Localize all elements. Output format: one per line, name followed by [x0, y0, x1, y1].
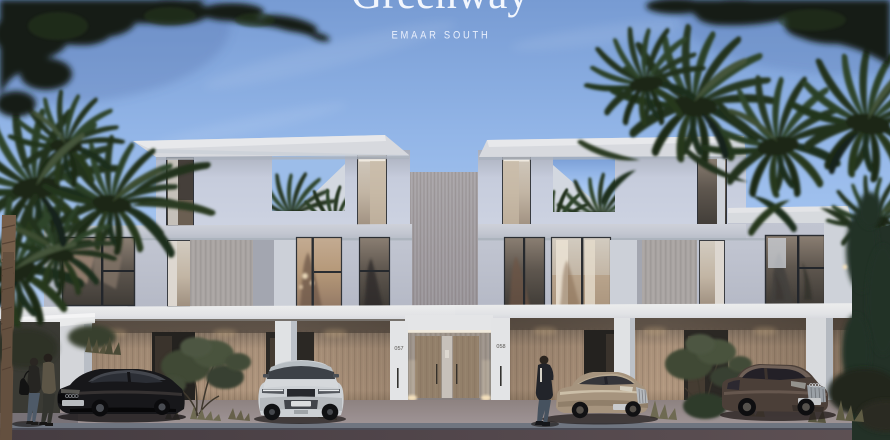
- svg-text:Greenway: Greenway: [351, 0, 529, 18]
- svg-text:EMAAR SOUTH: EMAAR SOUTH: [392, 30, 491, 42]
- svg-text:058: 058: [496, 344, 505, 350]
- svg-text:057: 057: [394, 346, 403, 352]
